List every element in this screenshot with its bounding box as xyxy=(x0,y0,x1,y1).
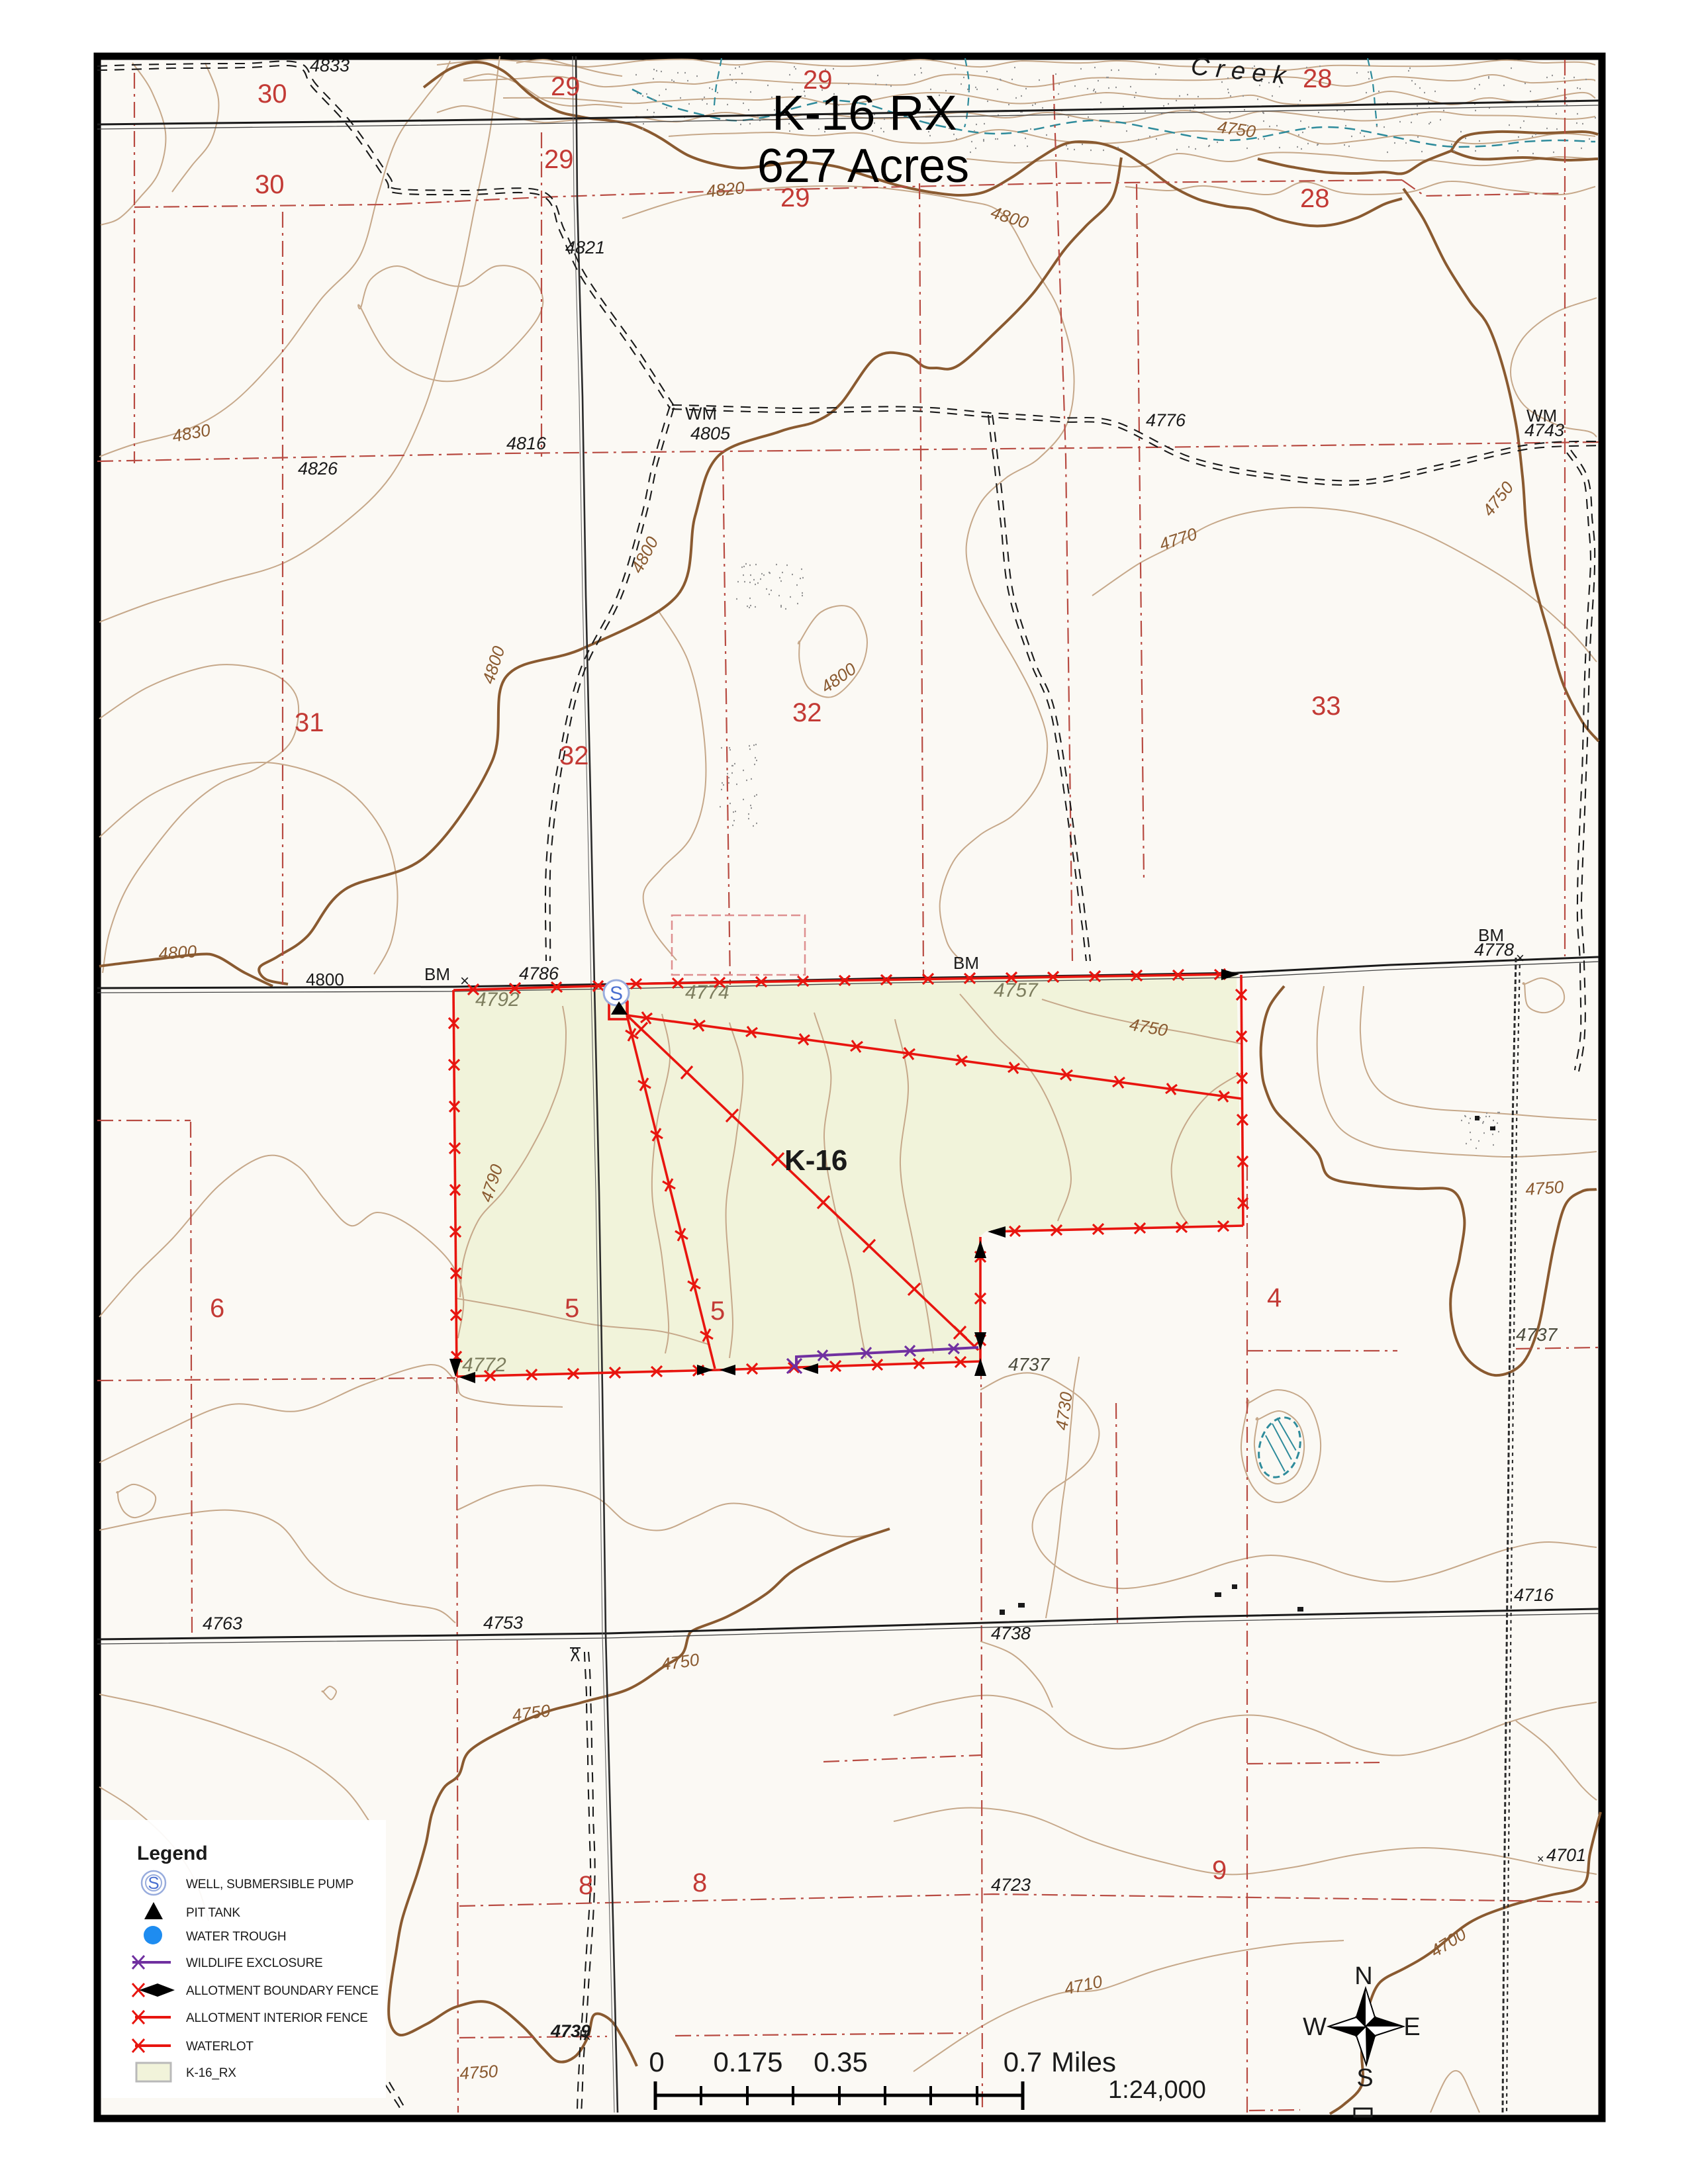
svg-text:0.175: 0.175 xyxy=(713,2046,782,2077)
svg-text:4786: 4786 xyxy=(519,964,559,983)
svg-text:ALLOTMENT INTERIOR FENCE: ALLOTMENT INTERIOR FENCE xyxy=(186,2011,368,2025)
svg-text:31: 31 xyxy=(295,708,324,737)
svg-text:ALLOTMENT BOUNDARY FENCE: ALLOTMENT BOUNDARY FENCE xyxy=(186,1984,379,1998)
svg-text:K-16 RX: K-16 RX xyxy=(772,85,957,140)
svg-text:Legend: Legend xyxy=(137,1843,208,1864)
svg-text:29: 29 xyxy=(551,72,581,101)
svg-text:×: × xyxy=(583,2028,591,2045)
svg-text:4800: 4800 xyxy=(306,970,344,989)
svg-text:4716: 4716 xyxy=(1514,1585,1554,1605)
svg-text:S: S xyxy=(148,1873,159,1893)
svg-text:PIT TANK: PIT TANK xyxy=(186,1906,240,1920)
svg-text:9: 9 xyxy=(1212,1856,1227,1885)
svg-text:4800: 4800 xyxy=(158,941,197,964)
svg-text:30: 30 xyxy=(255,170,285,199)
svg-text:33: 33 xyxy=(1311,692,1341,721)
svg-text:WATER TROUGH: WATER TROUGH xyxy=(186,1930,286,1944)
svg-text:K-16: K-16 xyxy=(784,1144,847,1177)
svg-text:WATERLOT: WATERLOT xyxy=(186,2040,254,2054)
svg-text:×: × xyxy=(1537,1852,1544,1866)
svg-text:4816: 4816 xyxy=(506,433,547,453)
svg-text:4: 4 xyxy=(1267,1283,1282,1312)
svg-text:BM: BM xyxy=(424,964,450,984)
svg-text:5: 5 xyxy=(565,1294,579,1323)
svg-text:32: 32 xyxy=(792,698,822,727)
svg-text:4772: 4772 xyxy=(462,1354,506,1376)
svg-text:4753: 4753 xyxy=(483,1613,523,1633)
svg-text:×: × xyxy=(1516,950,1524,966)
svg-text:4701: 4701 xyxy=(1546,1845,1586,1865)
svg-text:4833: 4833 xyxy=(310,56,350,75)
svg-text:30: 30 xyxy=(258,79,287,109)
svg-text:1:24,000: 1:24,000 xyxy=(1108,2076,1206,2104)
svg-text:4805: 4805 xyxy=(690,424,731,443)
svg-text:BM: BM xyxy=(953,953,979,973)
svg-text:S: S xyxy=(1356,2064,1373,2092)
svg-text:4750: 4750 xyxy=(1524,1177,1564,1199)
svg-text:29: 29 xyxy=(544,145,574,174)
svg-text:4826: 4826 xyxy=(298,459,338,478)
svg-text:0.35: 0.35 xyxy=(814,2046,868,2077)
svg-text:28: 28 xyxy=(1303,64,1333,93)
svg-text:4778: 4778 xyxy=(1474,940,1514,960)
svg-text:4723: 4723 xyxy=(991,1875,1031,1895)
svg-text:4763: 4763 xyxy=(203,1614,242,1633)
svg-text:WILDLIFE EXCLOSURE: WILDLIFE EXCLOSURE xyxy=(186,1956,323,1970)
svg-text:6: 6 xyxy=(210,1294,224,1323)
svg-text:32: 32 xyxy=(559,741,589,770)
svg-text:28: 28 xyxy=(1300,184,1330,213)
svg-text:E: E xyxy=(1403,2013,1420,2041)
svg-text:8: 8 xyxy=(692,1868,707,1897)
svg-text:WELL, SUBMERSIBLE PUMP: WELL, SUBMERSIBLE PUMP xyxy=(186,1878,353,1891)
svg-text:4792: 4792 xyxy=(475,989,520,1011)
svg-text:4738: 4738 xyxy=(991,1623,1031,1643)
svg-text:627 Acres: 627 Acres xyxy=(757,140,969,193)
svg-text:N: N xyxy=(1354,1962,1372,1990)
svg-text:×: × xyxy=(460,972,469,990)
svg-text:Miles: Miles xyxy=(1051,2046,1116,2077)
svg-text:4821: 4821 xyxy=(565,238,605,257)
svg-text:K-16_RX: K-16_RX xyxy=(186,2066,236,2080)
svg-text:WM: WM xyxy=(685,404,717,424)
svg-text:0.7: 0.7 xyxy=(1004,2046,1042,2077)
svg-text:4750: 4750 xyxy=(459,2061,498,2083)
svg-text:S: S xyxy=(610,983,623,1005)
svg-text:4743: 4743 xyxy=(1524,420,1564,440)
svg-text:8: 8 xyxy=(579,1871,593,1900)
svg-text:4776: 4776 xyxy=(1146,410,1186,430)
svg-text:4820: 4820 xyxy=(705,177,745,201)
svg-text:W: W xyxy=(1303,2013,1327,2041)
svg-text:4737: 4737 xyxy=(1516,1324,1558,1345)
svg-text:5: 5 xyxy=(710,1297,725,1326)
svg-text:0: 0 xyxy=(649,2046,664,2077)
svg-text:4737: 4737 xyxy=(1008,1354,1051,1375)
